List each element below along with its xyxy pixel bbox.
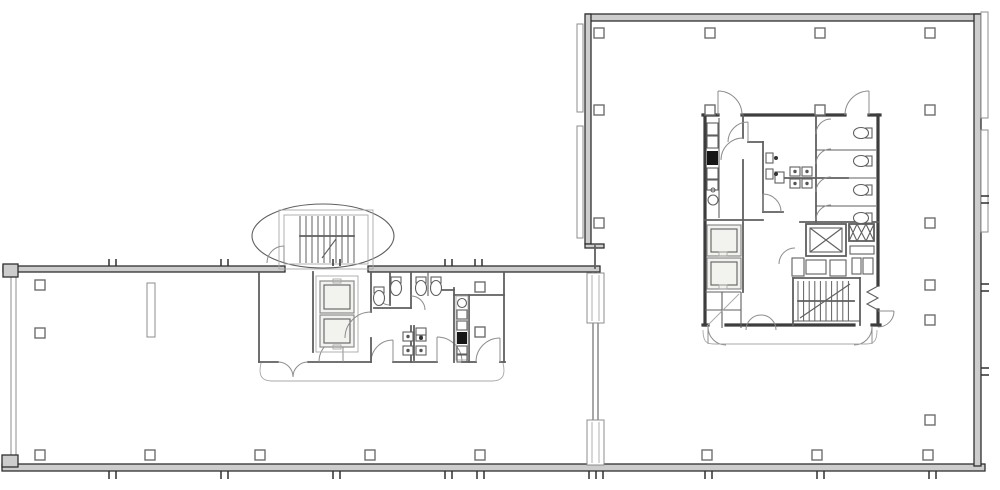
column — [925, 315, 935, 325]
stair-treads — [300, 216, 354, 263]
column — [812, 450, 822, 460]
sink-icon — [403, 346, 413, 355]
urinal-icon — [766, 153, 778, 163]
column — [475, 282, 485, 292]
column — [594, 105, 604, 115]
window-mullion-ticks — [109, 196, 989, 479]
sink-icon — [790, 179, 800, 188]
sink-icon — [416, 346, 426, 355]
sink-icon — [403, 332, 413, 341]
sink-icon — [790, 167, 800, 176]
column — [365, 450, 375, 460]
sink-icon — [802, 167, 812, 176]
oval-stair-tower — [252, 204, 394, 269]
toilet-icon — [391, 277, 402, 296]
column — [35, 280, 45, 290]
left-core-elevators — [313, 272, 358, 352]
floor-plan-page — [0, 0, 1000, 490]
column — [35, 328, 45, 338]
bifold-door — [867, 286, 878, 310]
structural-columns — [35, 28, 935, 460]
column — [925, 28, 935, 38]
toilet-icon — [854, 213, 873, 224]
column — [923, 450, 933, 460]
column — [705, 105, 715, 115]
column — [145, 450, 155, 460]
wing-divider-partition — [587, 246, 604, 465]
toilet-icon — [854, 185, 873, 196]
column — [475, 450, 485, 460]
sink-icon — [802, 179, 812, 188]
floor-plan-drawing — [0, 0, 1000, 490]
column — [815, 105, 825, 115]
toilet-icon — [431, 277, 442, 296]
column — [594, 28, 604, 38]
toilet-icon — [416, 277, 427, 296]
curtain-wall-panels — [577, 12, 988, 238]
column — [925, 218, 935, 228]
right-core-service-shaft — [849, 224, 874, 241]
toilet-icon — [854, 128, 873, 139]
right-core-kitchenette — [705, 115, 743, 220]
column — [815, 28, 825, 38]
column — [925, 415, 935, 425]
column — [255, 450, 265, 460]
fin-wall — [147, 283, 155, 337]
toilet-icon — [854, 156, 873, 167]
column — [35, 450, 45, 460]
column — [594, 218, 604, 228]
column — [475, 327, 485, 337]
column — [925, 280, 935, 290]
column — [702, 450, 712, 460]
toilet-icon — [374, 287, 385, 306]
column — [925, 105, 935, 115]
column — [705, 28, 715, 38]
exterior-walls — [2, 14, 985, 471]
